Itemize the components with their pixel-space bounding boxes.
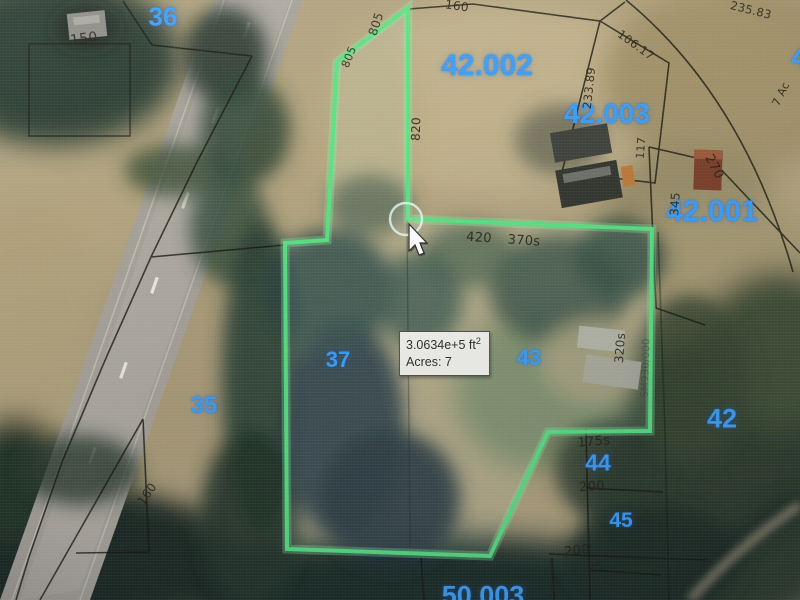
- map-canvas[interactable]: 36 42.002 42.003 42.001 37 35 43 42 44 4…: [0, 0, 800, 600]
- aerial-basemap: [0, 0, 800, 600]
- parcel-label-36: 36: [149, 2, 178, 33]
- dimension-label-420: 420: [466, 230, 493, 247]
- parcel-label-44: 44: [585, 450, 611, 477]
- dimension-label-200-a: 200: [579, 479, 606, 496]
- parcel-label-50-003: 50.003: [442, 581, 525, 600]
- parcel-label-45: 45: [609, 509, 632, 533]
- tooltip-area-line: 3.0634e+5 ft2: [406, 335, 481, 354]
- parcel-label-42-003: 42.003: [564, 98, 650, 130]
- parcel-label-42: 42: [707, 404, 737, 435]
- parcel-label-partial-4: 4: [791, 43, 800, 74]
- dimension-label-100: 100: [547, 577, 562, 600]
- parcel-label-43: 43: [517, 345, 541, 371]
- dimension-label-320s: 320s: [612, 332, 628, 363]
- parcel-label-35: 35: [191, 392, 218, 420]
- dimension-label-175s: 175s: [577, 433, 611, 451]
- parcel-label-42-002: 42.002: [441, 49, 533, 83]
- dimension-label-25: 25: [586, 559, 604, 576]
- tooltip-acres-line: Acres: 7: [406, 354, 481, 371]
- measurement-tooltip: 3.0634e+5 ft2 Acres: 7: [399, 331, 490, 376]
- dimension-label-345: 345: [667, 192, 683, 217]
- parcel-label-37: 37: [326, 347, 350, 373]
- dimension-label-370s: 370s: [507, 232, 541, 249]
- dimension-label-200-b: 200: [563, 542, 590, 560]
- dimension-label-820: 820: [409, 117, 424, 141]
- tooltip-area-exponent: 2: [476, 336, 481, 346]
- dimension-label-117: 117: [634, 137, 649, 160]
- dimension-label-sm930: SM930/000: [639, 338, 652, 398]
- vertex-ring: [390, 203, 422, 235]
